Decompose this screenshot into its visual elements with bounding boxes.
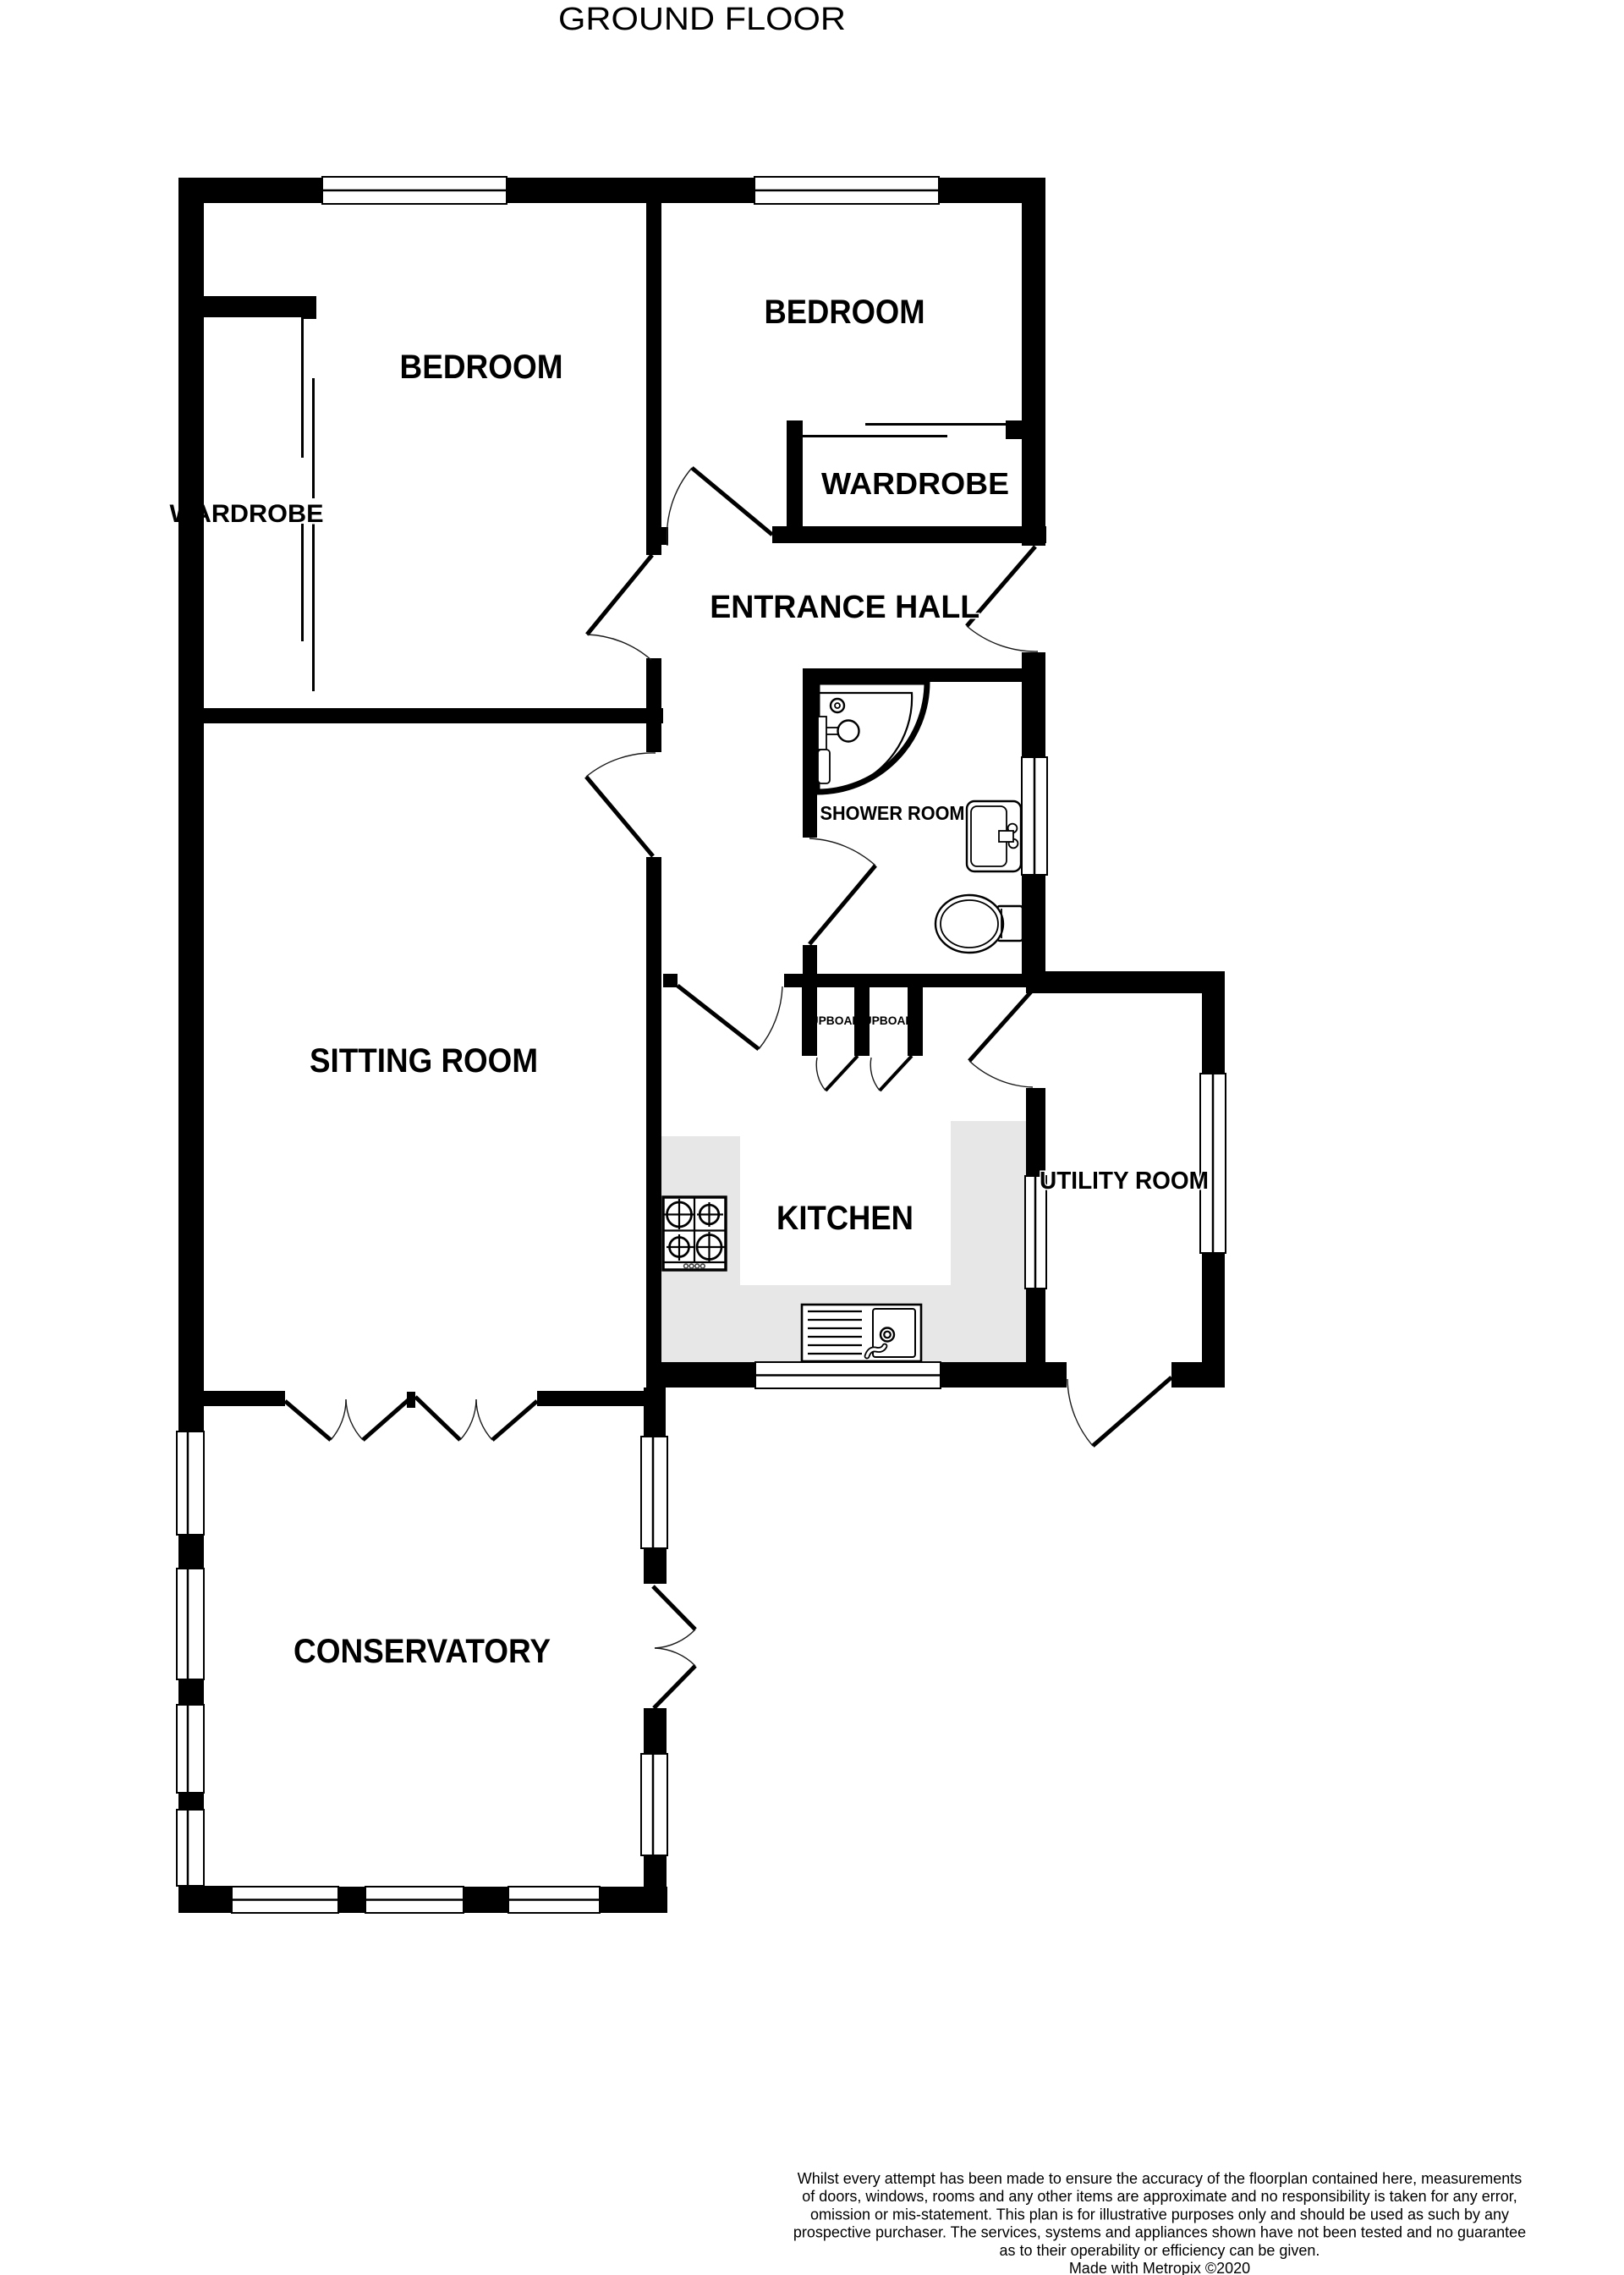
svg-text:SHOWER ROOM: SHOWER ROOM — [820, 802, 965, 824]
svg-text:GROUND FLOOR: GROUND FLOOR — [558, 2, 846, 37]
svg-text:WARDROBE: WARDROBE — [821, 466, 1009, 501]
svg-text:CONSERVATORY: CONSERVATORY — [294, 1633, 551, 1670]
svg-text:ENTRANCE HALL: ENTRANCE HALL — [710, 590, 979, 625]
svg-text:KITCHEN: KITCHEN — [776, 1200, 913, 1237]
svg-text:of doors, windows, rooms and a: of doors, windows, rooms and any other i… — [802, 2188, 1517, 2205]
svg-text:as to their operability or eff: as to their operability or efficiency ca… — [1000, 2242, 1320, 2259]
svg-text:omission or mis-statement. Thi: omission or mis-statement. This plan is … — [810, 2206, 1509, 2223]
svg-text:UTILITY ROOM: UTILITY ROOM — [1040, 1168, 1209, 1195]
svg-text:BEDROOM: BEDROOM — [400, 349, 563, 386]
svg-text:Whilst every attempt has been: Whilst every attempt has been made to en… — [798, 2170, 1522, 2187]
svg-text:prospective purchaser. The ser: prospective purchaser. The services, sys… — [793, 2224, 1526, 2241]
svg-text:BEDROOM: BEDROOM — [765, 294, 925, 331]
svg-text:Made with Metropix ©2020: Made with Metropix ©2020 — [1069, 2260, 1250, 2275]
svg-text:SITTING ROOM: SITTING ROOM — [310, 1042, 538, 1080]
